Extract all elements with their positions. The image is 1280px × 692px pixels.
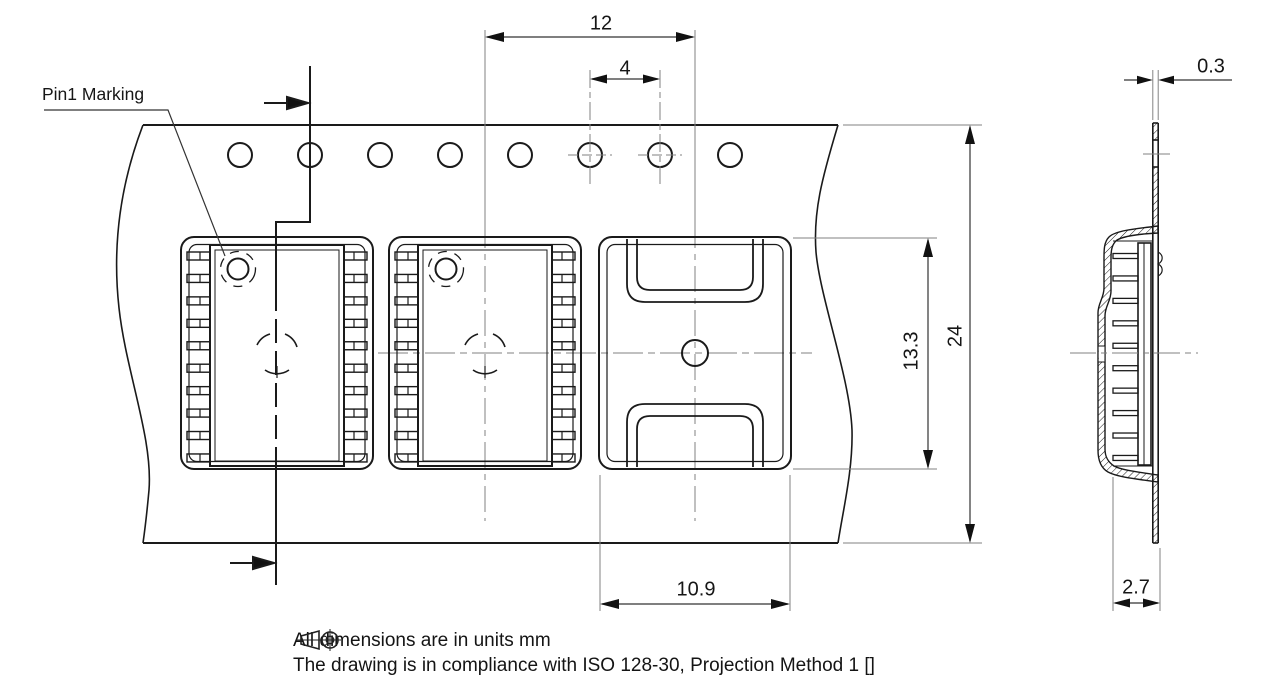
first-angle-projection-icon: [296, 628, 342, 652]
ic-pin: [552, 252, 575, 260]
ic-pin: [344, 409, 367, 417]
technical-drawing-svg: [0, 0, 1280, 692]
ic-pin: [395, 409, 418, 417]
tape-break-right: [815, 125, 852, 543]
side-ic-pin: [1113, 388, 1138, 393]
pin1-leader-line: [44, 110, 225, 256]
ic-pin: [187, 364, 210, 372]
pin1-marking-label: Pin1 Marking: [42, 84, 144, 105]
side-view-section: [1070, 123, 1198, 543]
dim-12-label: 12: [590, 13, 612, 36]
sprocket-hole: [438, 143, 462, 167]
technical-drawing-page: Pin1 Marking 12 4 24 13.3 10.9 0.3 2.7 A…: [0, 0, 1280, 692]
ic-pin: [344, 297, 367, 305]
ic-pin: [552, 432, 575, 440]
dim-4: [590, 70, 660, 188]
side-ic-pin: [1113, 366, 1138, 371]
ic-pin: [344, 274, 367, 282]
dim-13-3-label: 13.3: [901, 332, 924, 371]
ic-pin: [395, 297, 418, 305]
ic-pin: [344, 364, 367, 372]
side-ic-pin: [1113, 321, 1138, 326]
ic-pin: [187, 297, 210, 305]
ic-pin: [395, 319, 418, 327]
sprocket-hole: [368, 143, 392, 167]
sprocket-hole: [718, 143, 742, 167]
ic-pin: [187, 342, 210, 350]
ic-pin: [552, 274, 575, 282]
ic-pin: [344, 432, 367, 440]
ic-pin: [344, 387, 367, 395]
ic-pin: [552, 364, 575, 372]
drawing-notes: All dimensions are in units mm The drawi…: [293, 628, 875, 678]
dim-10-9-label: 10.9: [677, 579, 716, 602]
carrier-tape-top-view: [117, 125, 853, 543]
side-wall-center-hole-gap: [1099, 346, 1105, 362]
side-ic-pin: [1113, 298, 1138, 303]
tape-break-left: [117, 125, 150, 543]
ic-pin: [552, 387, 575, 395]
ic-pin: [187, 387, 210, 395]
ic-pin: [344, 342, 367, 350]
side-ic: [1113, 243, 1151, 465]
ic-pin: [552, 297, 575, 305]
side-ic-pin: [1113, 433, 1138, 438]
dim-0-3-label: 0.3: [1197, 56, 1225, 79]
ic-pin: [187, 432, 210, 440]
ic-pin: [552, 342, 575, 350]
ic-pin: [395, 387, 418, 395]
ic-pin: [552, 319, 575, 327]
side-ic-pin: [1113, 276, 1138, 281]
dim-24-label: 24: [945, 325, 968, 347]
side-ic-pin: [1113, 254, 1138, 259]
ic-pin: [395, 432, 418, 440]
ic-pin: [395, 252, 418, 260]
ic-pin: [187, 409, 210, 417]
ic-pin: [187, 252, 210, 260]
ic-pin: [395, 274, 418, 282]
ic-pin: [395, 364, 418, 372]
note-units: All dimensions are in units mm: [293, 628, 875, 653]
ic-packages: [187, 245, 575, 466]
ic-pin: [187, 274, 210, 282]
side-ic-pin: [1113, 455, 1138, 460]
ic-pin: [395, 342, 418, 350]
ic-pin: [344, 252, 367, 260]
ic-pin: [344, 319, 367, 327]
sprocket-hole: [508, 143, 532, 167]
dim-4-label: 4: [619, 58, 630, 81]
pin1-mark-1: [216, 247, 261, 292]
pocket-centerlines-vertical: [485, 222, 695, 521]
dim-2-7-label: 2.7: [1122, 577, 1150, 600]
side-ic-pin: [1113, 411, 1138, 416]
side-ic-pin: [1113, 343, 1138, 348]
note-iso: The drawing is in compliance with ISO 12…: [293, 653, 875, 678]
ic-pin: [187, 319, 210, 327]
pin1-mark-2: [424, 247, 469, 292]
side-pocket-wall: [1098, 226, 1158, 482]
sprocket-hole: [228, 143, 252, 167]
ic-pin: [552, 409, 575, 417]
